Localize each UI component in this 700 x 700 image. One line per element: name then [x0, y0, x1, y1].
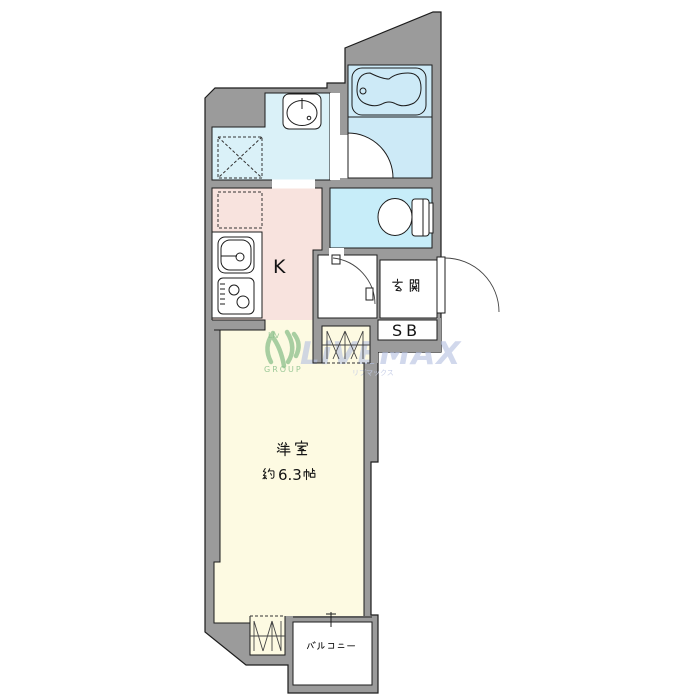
floorplan: 玄関 洋室 約6.3帖 バルコニー [0, 0, 700, 700]
kitchen-counter [212, 232, 262, 318]
toilet-doorway [329, 248, 344, 256]
washroom-doorway [272, 180, 315, 189]
entrance-door-swing [445, 258, 499, 312]
hallway-floor [318, 255, 377, 318]
entrance-door-leaf [437, 257, 445, 313]
bathroom-doorway [340, 135, 348, 178]
bath-threshold [330, 93, 340, 180]
toilet [378, 199, 433, 237]
genkan-floor [380, 260, 437, 318]
watermark-logo-text: Liv [268, 331, 280, 340]
shoebox-label: SB [392, 321, 421, 340]
watermark-subtext: リブマックス [352, 368, 394, 377]
door-catch-mark [366, 288, 373, 300]
door-frame-mark [332, 255, 340, 264]
kitchen-label: K [273, 256, 286, 278]
balcony-floor [293, 622, 372, 685]
vanity-sink [283, 94, 321, 129]
floorplan-drawing: Liv GROUP LiVEMAX リブマックス [0, 0, 700, 700]
watermark-group-text: GROUP [264, 365, 303, 374]
room-floors [212, 65, 437, 685]
main-room-size-number: 6.3 [278, 466, 302, 484]
